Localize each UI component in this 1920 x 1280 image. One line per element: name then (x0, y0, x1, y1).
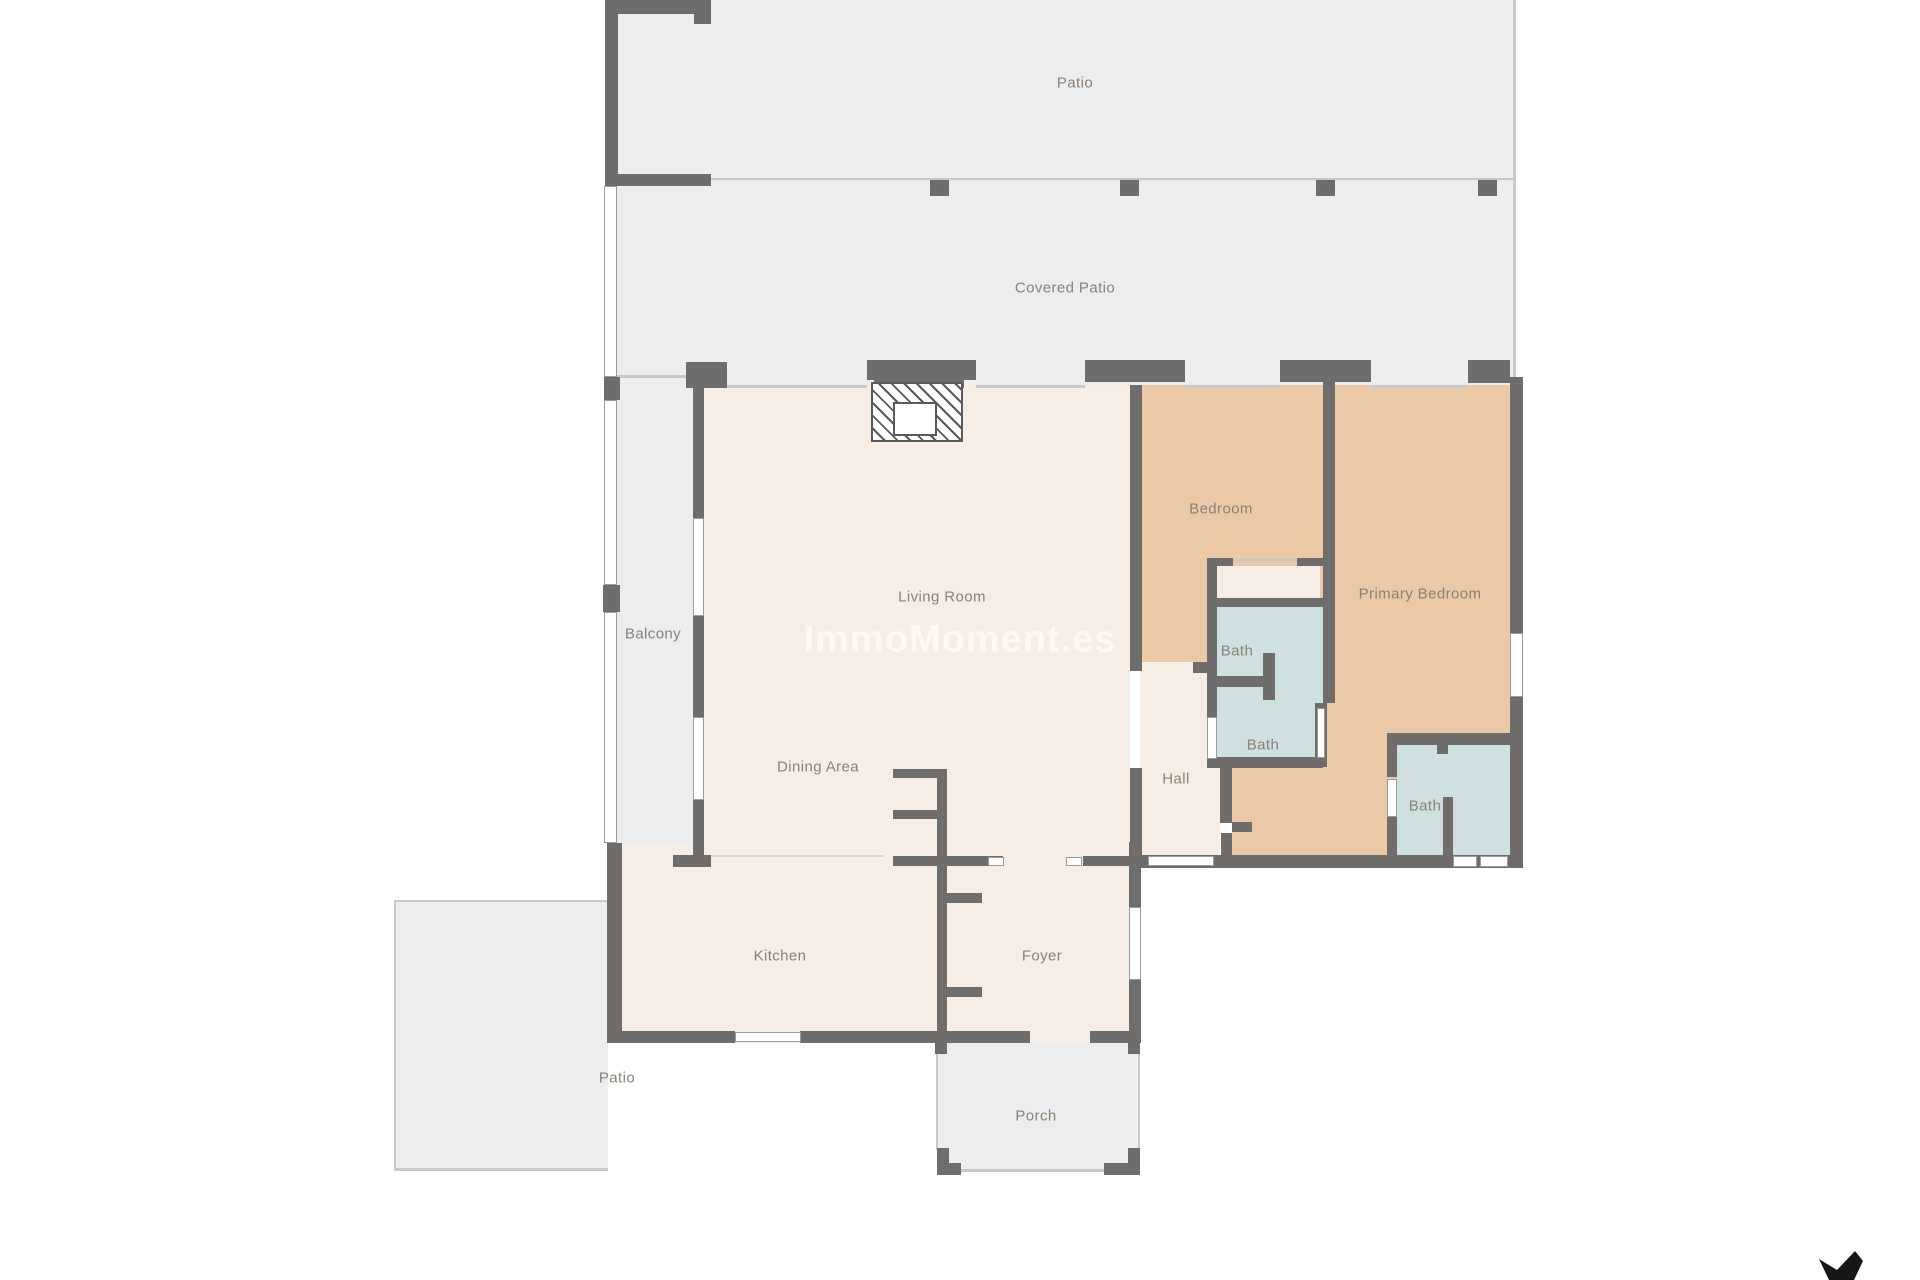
patio-pillar (930, 180, 949, 196)
room-label-dining-area: Dining Area (777, 759, 859, 776)
stair-wall (893, 769, 947, 778)
window (604, 400, 617, 585)
window (1510, 633, 1523, 697)
immomoment-bird-logo-icon (1812, 1246, 1870, 1280)
room-label-covered-patio: Covered Patio (1015, 280, 1115, 297)
wall-segment (1387, 817, 1397, 855)
window (735, 1032, 801, 1042)
room-label-patio-lower: Patio (599, 1070, 635, 1087)
room-label-bedroom: Bedroom (1189, 501, 1253, 518)
stair-wall (947, 893, 982, 903)
window (1480, 856, 1508, 867)
window (604, 186, 617, 377)
fireplace-firebox (893, 402, 937, 436)
room-kitchen-foyer (620, 843, 1140, 1043)
wall-segment (673, 855, 711, 867)
wall-segment (1323, 382, 1335, 703)
door-leaf (1207, 717, 1217, 759)
window (693, 518, 704, 616)
porch-post (935, 1040, 947, 1054)
boundary-line (394, 900, 608, 902)
boundary-line (617, 375, 686, 378)
room-label-bath-lower: Bath (1409, 798, 1441, 815)
room-label-balcony: Balcony (625, 626, 681, 643)
boundary-line (704, 855, 884, 857)
wall-pillar (686, 362, 727, 388)
room-label-bath-upper: Bath (1221, 643, 1253, 660)
wall-segment (694, 12, 711, 24)
room-patio-lower (394, 900, 608, 1170)
door-lintel (1085, 360, 1185, 382)
door-lintel (1468, 360, 1510, 383)
door-leaf (1317, 708, 1325, 758)
door-lintel (867, 360, 976, 380)
window (604, 612, 617, 843)
wall-segment (1387, 733, 1510, 745)
boundary-line (1371, 385, 1468, 388)
boundary-line (936, 1052, 938, 1150)
window (1453, 856, 1477, 867)
room-label-hall: Hall (1162, 771, 1189, 788)
patio-pillar (1120, 180, 1139, 196)
wall-segment (1220, 767, 1232, 823)
wall-segment (1130, 768, 1142, 858)
wall-segment (693, 616, 704, 717)
stair-wall (893, 810, 947, 819)
boundary-line (394, 1168, 608, 1171)
window (1148, 856, 1214, 866)
window (693, 717, 704, 800)
wall-segment (1387, 745, 1397, 777)
room-label-patio-top: Patio (1057, 75, 1093, 92)
floor-plan: ImmoMoment.es Patio Covered Patio Balcon… (0, 0, 1920, 1280)
boundary-line (1185, 385, 1280, 388)
wall-segment (1437, 745, 1448, 754)
boundary-line (727, 385, 867, 388)
door-lintel (1280, 360, 1371, 382)
wall-segment (1232, 822, 1252, 832)
door-leaf (1387, 779, 1397, 817)
wall-segment (693, 800, 704, 857)
boundary-line (394, 900, 396, 1170)
porch-post (1104, 1163, 1140, 1175)
wall-segment (607, 1031, 735, 1043)
wall-segment (893, 856, 1003, 866)
wall-segment (604, 377, 620, 400)
porch-post (1128, 1038, 1140, 1054)
boundary-line (1513, 0, 1516, 380)
wall-segment (1130, 385, 1142, 671)
wall-segment (1221, 833, 1232, 857)
stair-wall (943, 987, 982, 997)
room-label-primary-bedroom: Primary Bedroom (1359, 586, 1482, 603)
room-closet (1217, 566, 1320, 598)
wall-segment (1443, 797, 1453, 855)
room-label-foyer: Foyer (1022, 948, 1062, 965)
watermark: ImmoMoment.es (804, 619, 1117, 662)
room-label-kitchen: Kitchen (754, 948, 807, 965)
wall-segment (1263, 653, 1275, 700)
wall-segment (605, 174, 711, 186)
fireplace (871, 382, 963, 442)
door-leaf (1066, 857, 1082, 866)
room-label-living-room: Living Room (898, 589, 986, 606)
boundary-line (976, 385, 1085, 388)
boundary-line (1233, 559, 1297, 561)
wall-segment (607, 843, 622, 1043)
wall-segment (1297, 558, 1323, 566)
boundary-line (1138, 1052, 1140, 1150)
wall-segment (1510, 377, 1523, 633)
door-leaf (988, 857, 1004, 866)
room-label-bath-middle: Bath (1247, 737, 1279, 754)
wall-segment (1083, 856, 1130, 866)
wall-segment (1207, 598, 1323, 607)
wall-segment (693, 388, 704, 518)
room-label-porch: Porch (1015, 1108, 1056, 1125)
patio-pillar (1478, 180, 1497, 196)
porch-post (937, 1163, 961, 1175)
wall-segment (1207, 558, 1233, 566)
boundary-line (617, 178, 1514, 180)
wall-segment (800, 1031, 1030, 1043)
wall-pillar (603, 585, 620, 612)
room-primary-bedroom-extension (1232, 767, 1397, 857)
patio-pillar (1316, 180, 1335, 196)
wall-segment (605, 0, 618, 186)
window (1129, 907, 1141, 980)
wall-segment (1510, 697, 1523, 857)
wall-segment (1129, 980, 1141, 1043)
